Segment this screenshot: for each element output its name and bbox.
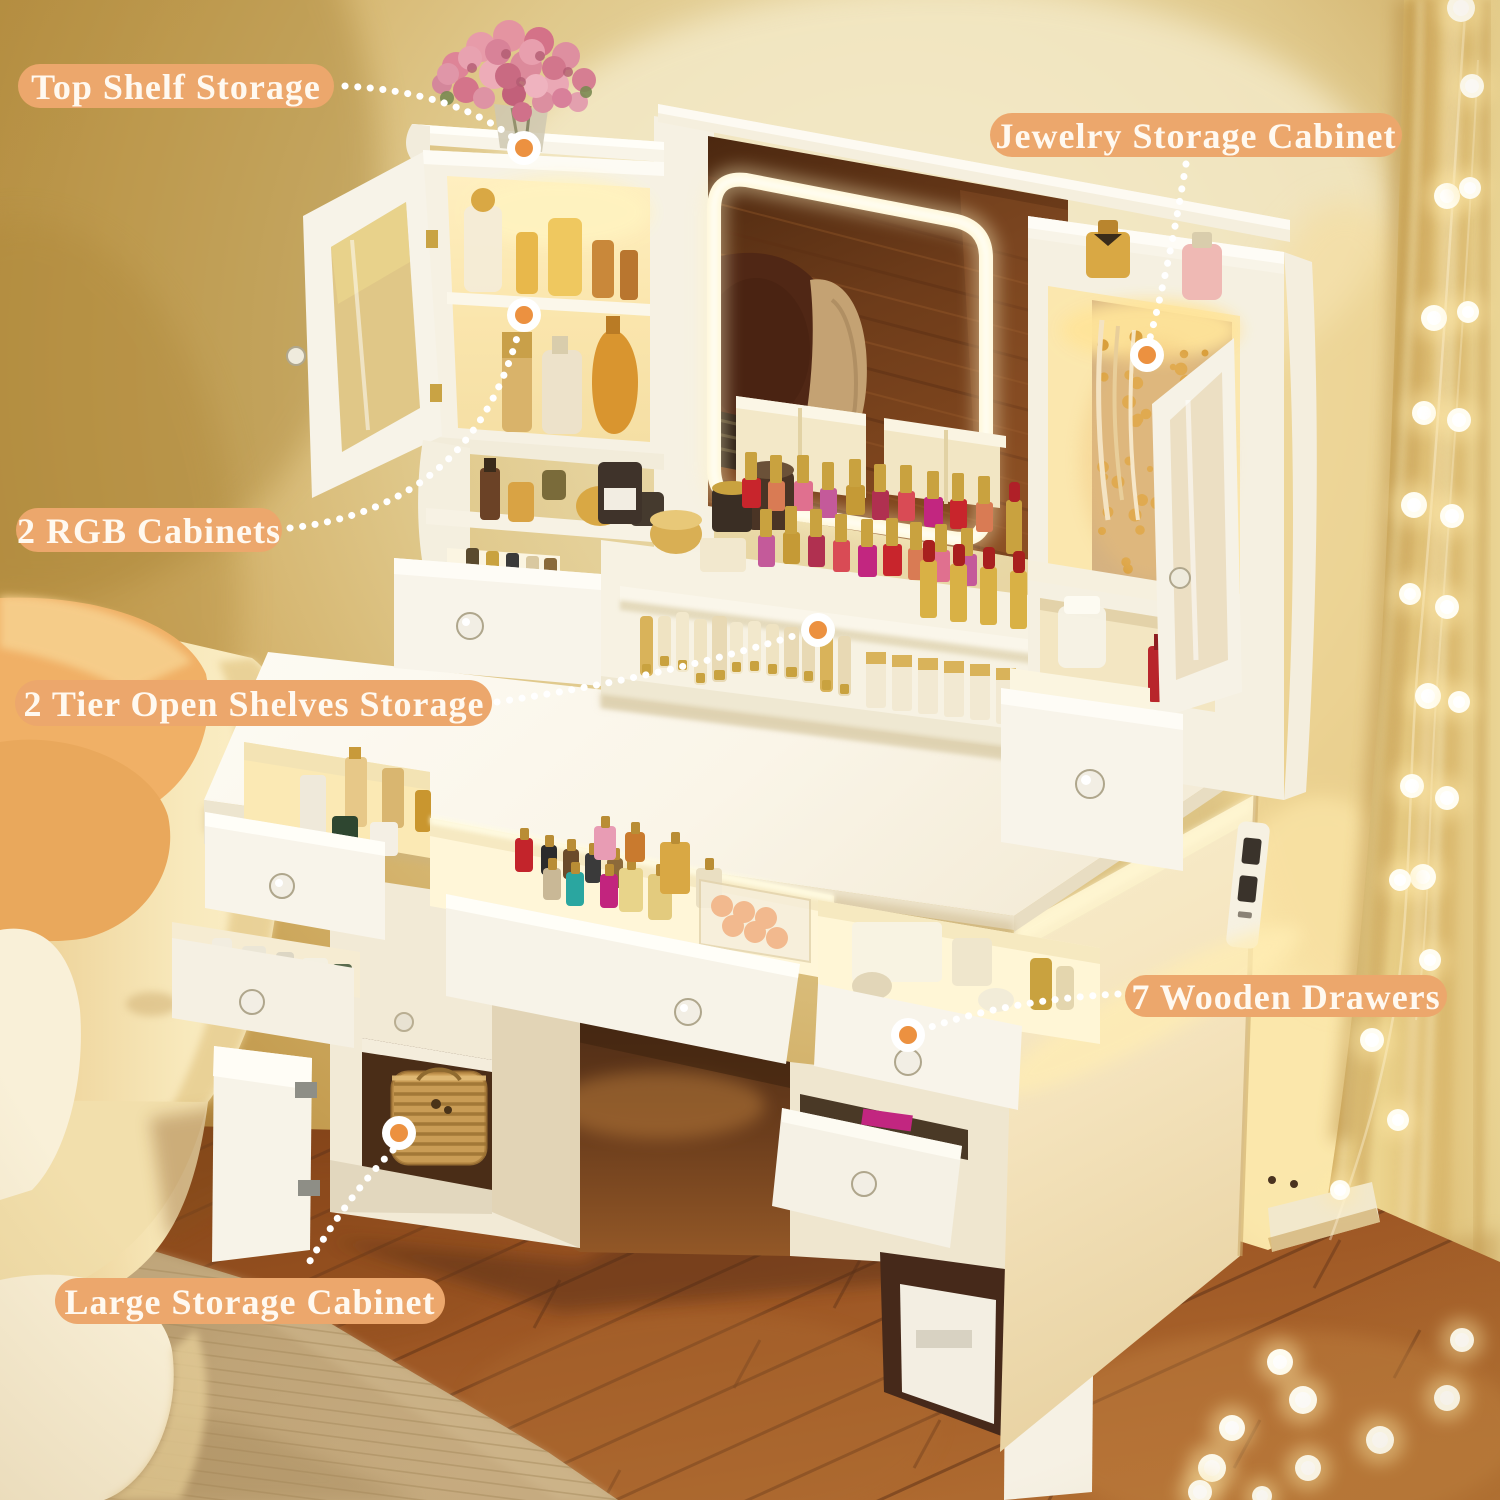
svg-text:2 Tier Open Shelves Storage: 2 Tier Open Shelves Storage xyxy=(23,684,484,724)
svg-text:Top Shelf Storage: Top Shelf Storage xyxy=(31,67,321,107)
svg-text:2 RGB Cabinets: 2 RGB Cabinets xyxy=(17,511,281,551)
svg-text:Jewelry Storage Cabinet: Jewelry Storage Cabinet xyxy=(996,116,1397,156)
svg-text:7 Wooden Drawers: 7 Wooden Drawers xyxy=(1131,977,1440,1017)
svg-text:Large Storage Cabinet: Large Storage Cabinet xyxy=(65,1282,436,1322)
